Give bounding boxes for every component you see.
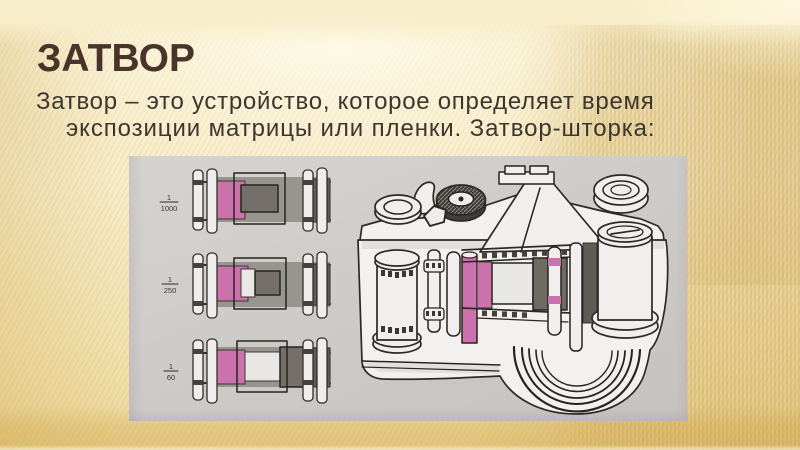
svg-text:1: 1 [169,362,173,371]
svg-text:1: 1 [168,275,172,284]
svg-text:1000: 1000 [161,204,178,213]
svg-text:1: 1 [167,193,171,202]
svg-text:60: 60 [167,373,175,382]
svg-text:250: 250 [164,286,177,295]
